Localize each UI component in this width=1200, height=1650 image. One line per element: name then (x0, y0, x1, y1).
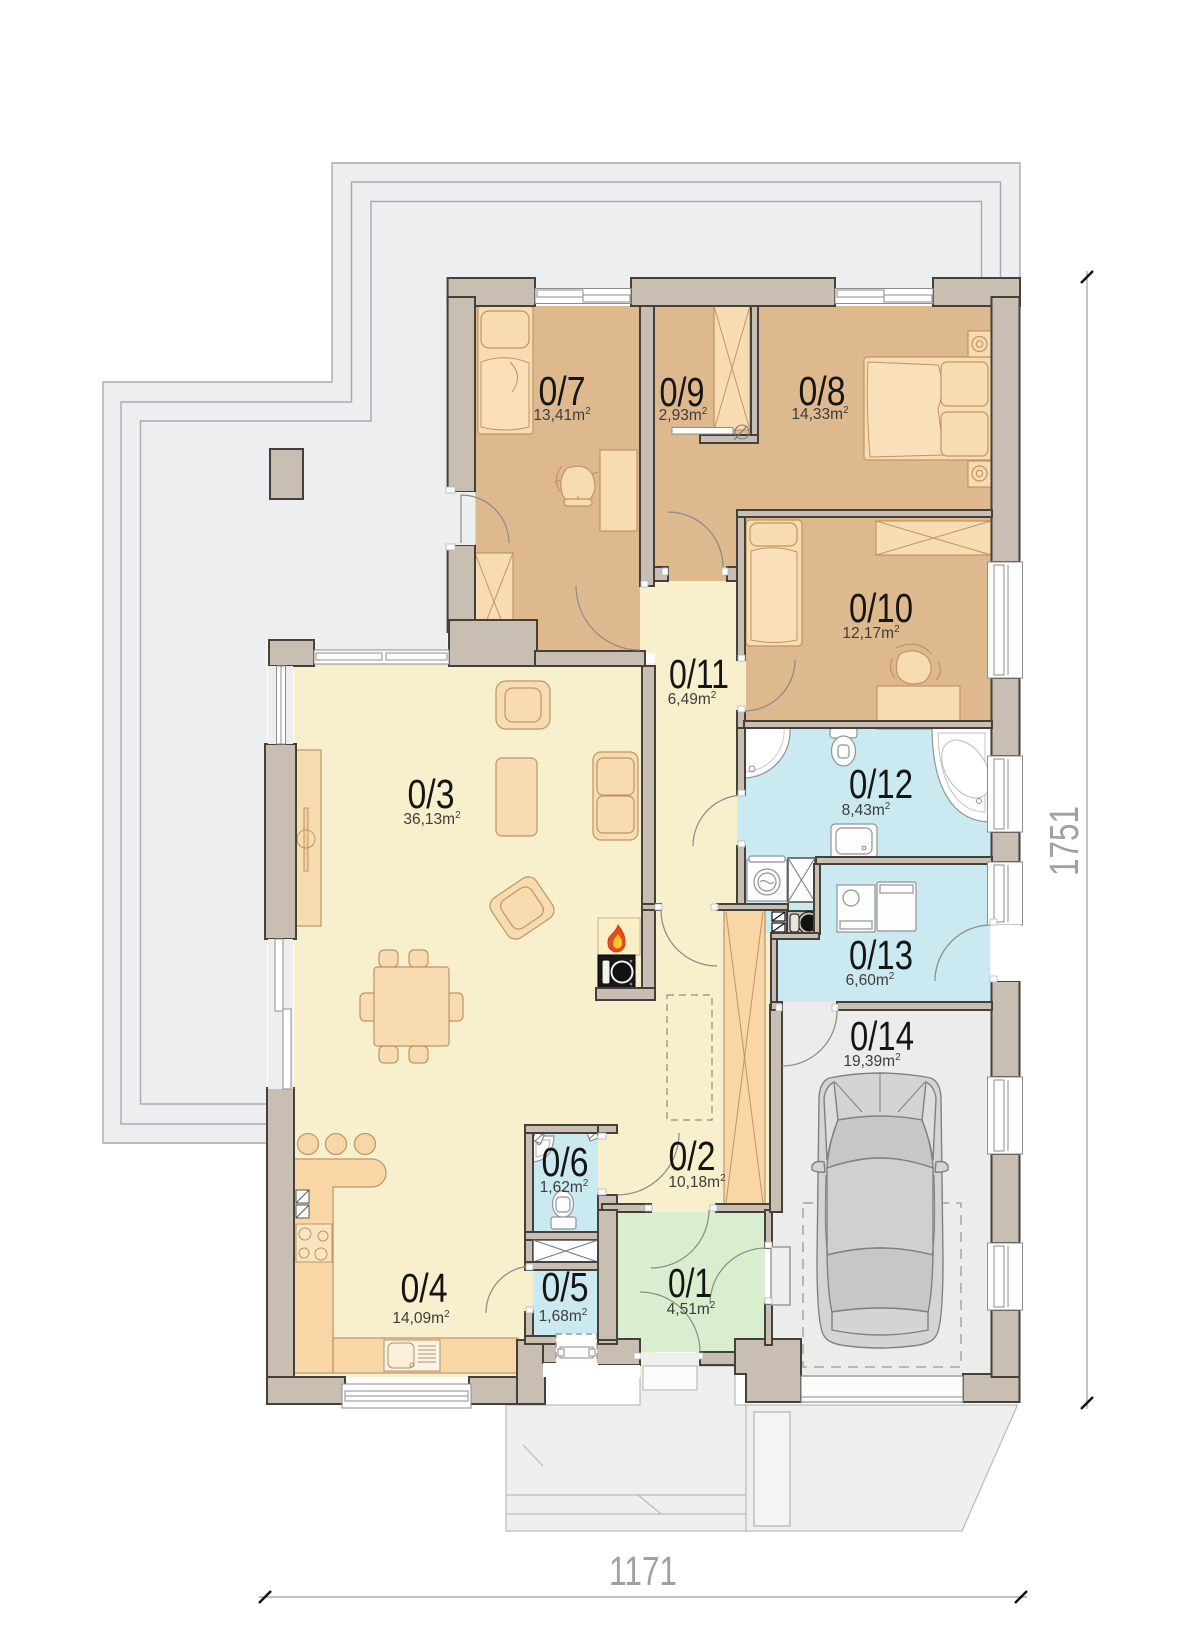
svg-text:1,62m2: 1,62m2 (540, 1178, 589, 1196)
svg-text:13,41m2: 13,41m2 (533, 406, 591, 424)
svg-text:0/5: 0/5 (542, 1264, 589, 1310)
svg-text:0/1: 0/1 (668, 1260, 712, 1306)
svg-text:1,68m2: 1,68m2 (539, 1307, 588, 1325)
svg-text:10,18m2: 10,18m2 (668, 1173, 726, 1191)
svg-text:1171: 1171 (609, 1548, 677, 1594)
svg-text:14,09m2: 14,09m2 (392, 1309, 450, 1327)
svg-text:6,49m2: 6,49m2 (668, 690, 717, 708)
svg-text:0/12: 0/12 (849, 761, 913, 807)
svg-text:12,17m2: 12,17m2 (842, 624, 900, 642)
svg-text:8,43m2: 8,43m2 (842, 801, 891, 819)
svg-text:6,60m2: 6,60m2 (846, 971, 895, 989)
svg-text:4,51m2: 4,51m2 (667, 1300, 716, 1318)
svg-text:19,39m2: 19,39m2 (843, 1052, 901, 1070)
svg-text:14,33m2: 14,33m2 (791, 405, 849, 423)
svg-text:36,13m2: 36,13m2 (403, 810, 461, 828)
svg-text:1751: 1751 (1041, 806, 1087, 876)
svg-text:2,93m2: 2,93m2 (659, 406, 708, 424)
svg-text:0/2: 0/2 (669, 1133, 716, 1179)
svg-text:0/4: 0/4 (401, 1265, 448, 1311)
